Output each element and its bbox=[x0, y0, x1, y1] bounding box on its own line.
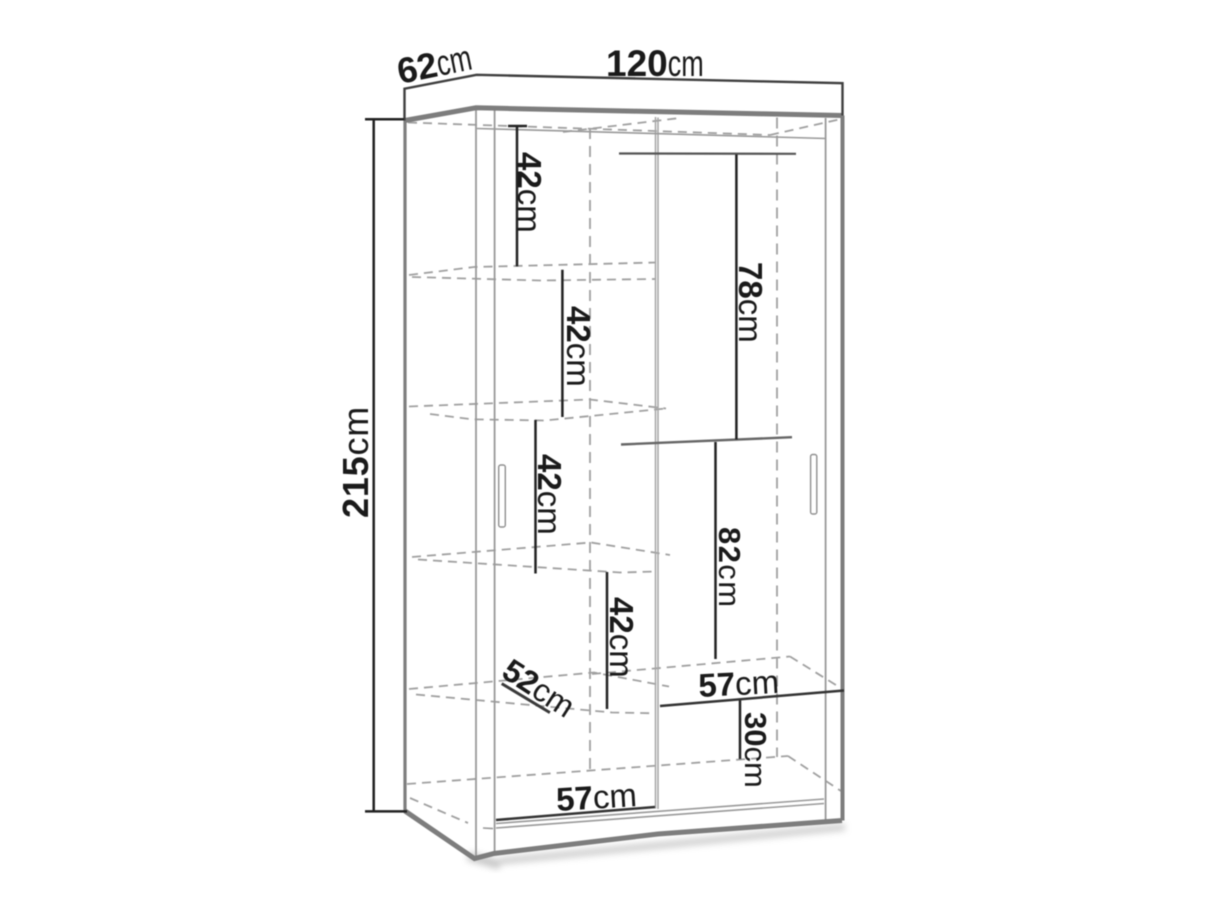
svg-text:120cm: 120cm bbox=[606, 43, 704, 84]
svg-text:42cm: 42cm bbox=[603, 597, 640, 678]
svg-text:42cm: 42cm bbox=[560, 306, 597, 387]
svg-text:42cm: 42cm bbox=[511, 152, 548, 233]
svg-text:78cm: 78cm bbox=[732, 262, 769, 343]
svg-text:42cm: 42cm bbox=[531, 454, 568, 535]
svg-text:215cm: 215cm bbox=[335, 406, 376, 518]
svg-text:57cm: 57cm bbox=[697, 663, 780, 704]
svg-text:82cm: 82cm bbox=[712, 527, 747, 608]
svg-text:57cm: 57cm bbox=[555, 776, 638, 818]
svg-text:30cm: 30cm bbox=[738, 712, 773, 788]
